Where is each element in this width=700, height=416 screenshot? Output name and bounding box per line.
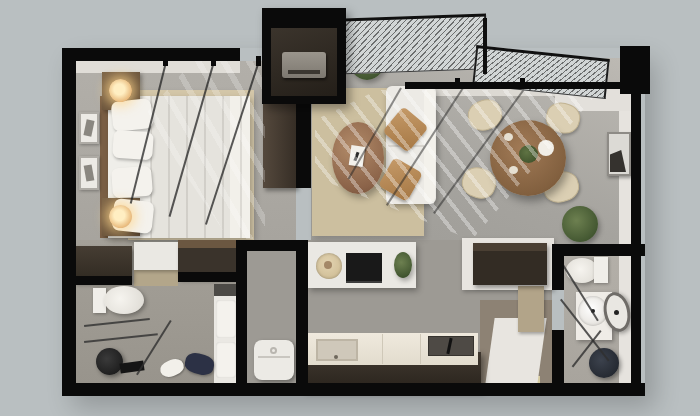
- hvac-unit: [282, 52, 326, 78]
- cabinet-right-wall-edge: [178, 272, 238, 282]
- round-stool: [96, 348, 123, 375]
- kitchen-faucet: [334, 355, 338, 359]
- table-lamp-top: [109, 79, 132, 102]
- tv-plant: [394, 252, 412, 278]
- wall-mullion-anchor: [211, 56, 216, 66]
- hall-side-cabinet: [518, 286, 544, 332]
- cabinet-door: [216, 342, 236, 378]
- skylight-step-frame: [483, 18, 487, 74]
- wall-laundry-right: [296, 240, 308, 383]
- beam-mullion-anchor: [455, 78, 460, 88]
- tall-wardrobe: [263, 94, 297, 188]
- wall-bath-right-left-upper: [552, 244, 564, 290]
- centerpiece-plant: [519, 145, 538, 163]
- counter-seam: [382, 334, 383, 364]
- toilet-left-bowl: [104, 286, 144, 314]
- floor-plan: [0, 0, 700, 416]
- niche-wardrobe-dark: [473, 243, 547, 285]
- duvet-folds: [150, 96, 250, 238]
- hvac-vent-slot: [288, 70, 320, 74]
- wall-bath-right-left-lower: [552, 330, 564, 396]
- washer-knob: [270, 347, 277, 354]
- wall-right-pillar: [620, 46, 650, 94]
- wall-right: [631, 85, 641, 396]
- bath-cabinet-top-stub: [214, 284, 238, 296]
- toilet-right-tank: [594, 257, 608, 283]
- washer-door-line: [258, 356, 290, 358]
- table-plate: [504, 133, 513, 141]
- wall-mullion-anchor: [256, 56, 261, 66]
- wall-mullion-anchor: [163, 56, 168, 66]
- wall-bath-left-divider: [236, 248, 247, 383]
- wall-left: [62, 48, 76, 396]
- washing-machine: [254, 340, 294, 380]
- skylight-panel-high: [336, 13, 488, 74]
- mirror-dot: [614, 310, 619, 315]
- counter-seam: [420, 334, 421, 364]
- table-lamp-bottom: [109, 205, 132, 228]
- corridor-closet-white: [134, 242, 178, 270]
- table-plate: [509, 166, 518, 174]
- wall-laundry-top: [236, 240, 308, 251]
- cabinet-left-wall-edge: [74, 276, 132, 285]
- cabinet-door: [216, 300, 236, 338]
- tv: [346, 253, 382, 283]
- dining-floor-plant: [562, 206, 598, 242]
- table-bowl: [538, 140, 554, 156]
- beam-mullion-anchor: [520, 78, 525, 88]
- bed-pillow: [111, 98, 154, 132]
- decor-plate-dots: [324, 261, 332, 269]
- wall-bath-right-top: [552, 244, 645, 256]
